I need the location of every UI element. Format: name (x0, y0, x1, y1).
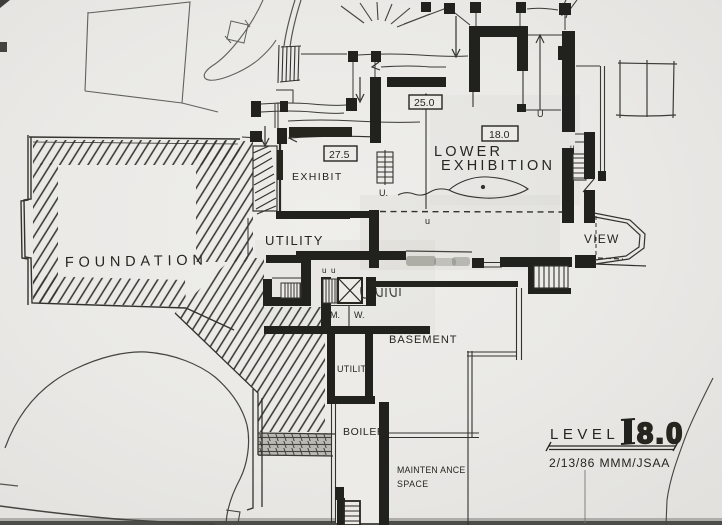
svg-text:VIEW: VIEW (584, 232, 619, 246)
svg-text:8.0: 8.0 (637, 418, 685, 450)
svg-text:25.0: 25.0 (414, 97, 435, 109)
svg-text:u: u (322, 266, 326, 275)
svg-text:BOILER: BOILER (343, 426, 385, 438)
svg-text:27.5: 27.5 (329, 149, 350, 161)
svg-text:BASEMENT: BASEMENT (389, 334, 458, 346)
svg-text:LEVEL: LEVEL (550, 426, 619, 443)
svg-text:MAINTEN ANCE: MAINTEN ANCE (397, 465, 465, 475)
svg-text:U: U (537, 109, 544, 119)
svg-text:EXHIBIT: EXHIBIT (292, 171, 343, 183)
svg-text:M.: M. (330, 310, 340, 320)
svg-text:UTILITY: UTILITY (337, 364, 373, 374)
svg-text:2/13/86 MMM/JSAA: 2/13/86 MMM/JSAA (549, 456, 670, 470)
svg-text:u: u (570, 143, 574, 152)
svg-text:18.0: 18.0 (489, 129, 510, 141)
svg-text:EXHIBITION: EXHIBITION (441, 158, 555, 174)
svg-text:u: u (425, 216, 430, 226)
svg-text:UTILITY: UTILITY (265, 233, 324, 248)
svg-text:u: u (331, 266, 335, 275)
svg-text:W.: W. (354, 310, 365, 320)
svg-text:SPACE: SPACE (397, 479, 429, 489)
svg-text:FOUNDATION: FOUNDATION (65, 253, 208, 271)
svg-text:U.: U. (379, 188, 388, 198)
